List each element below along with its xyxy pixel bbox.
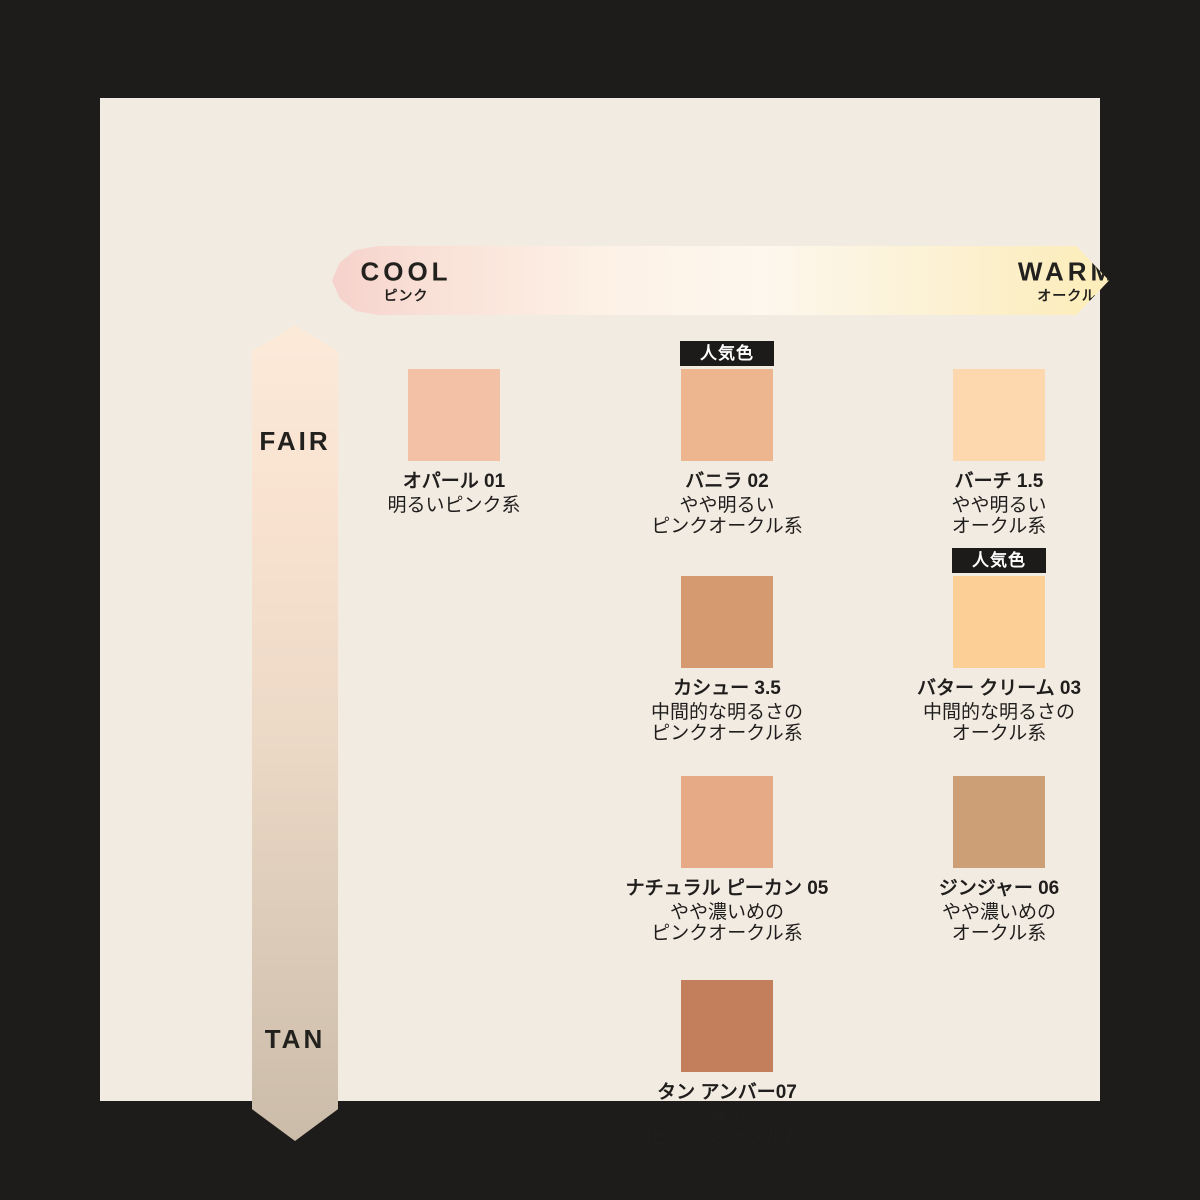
shade-swatch [953,576,1045,668]
chart-panel: COOL ピンク WARM オークル FAIR TAN オパール 01 明るいピ… [100,98,1100,1101]
shade-name: ナチュラル ピーカン 05 [607,878,847,900]
warm-label: WARM [1018,258,1116,285]
cool-sublabel: ピンク [360,288,451,303]
shade-cell: ジンジャー 06 やや濃いめの オークル系 [879,776,1119,944]
shade-swatch [953,369,1045,461]
shade-swatch [681,980,773,1072]
shade-swatch [681,776,773,868]
shade-description: やや明るい オークル系 [879,495,1119,537]
popular-badge: 人気色 [952,548,1046,573]
shade-cell: カシュー 3.5 中間的な明るさの ピンクオークル系 [607,576,847,744]
shade-description: やや濃いめの オークル系 [879,902,1119,944]
warm-axis-end: WARM オークル [1018,258,1116,303]
shade-name: ジンジャー 06 [879,878,1119,900]
shade-chart: COOL ピンク WARM オークル FAIR TAN オパール 01 明るいピ… [0,0,1200,1200]
shade-name: バニラ 02 [607,471,847,493]
shade-description: やや明るい ピンクオークル系 [607,495,847,537]
shade-cell: タン アンバー07 濃い ピンクオークル系 [607,980,847,1148]
cool-label: COOL [360,258,451,285]
shade-description: 濃い ピンクオークル系 [607,1106,847,1148]
shade-swatch [681,369,773,461]
shade-name: カシュー 3.5 [607,678,847,700]
shade-cell: バーチ 1.5 やや明るい オークル系 [879,369,1119,537]
shade-name: タン アンバー07 [607,1082,847,1104]
shade-cell: 人気色 バニラ 02 やや明るい ピンクオークル系 [607,369,847,537]
shade-description: 中間的な明るさの オークル系 [879,702,1119,744]
shade-name: バーチ 1.5 [879,471,1119,493]
popular-badge: 人気色 [680,341,774,366]
depth-axis-arrow: FAIR TAN [252,325,338,1141]
shade-description: やや濃いめの ピンクオークル系 [607,902,847,944]
shade-description: 中間的な明るさの ピンクオークル系 [607,702,847,744]
shade-description: 明るいピンク系 [334,495,574,516]
shade-swatch [408,369,500,461]
warm-sublabel: オークル [1018,288,1116,303]
shade-cell: ナチュラル ピーカン 05 やや濃いめの ピンクオークル系 [607,776,847,944]
fair-label: FAIR [252,426,338,457]
shade-swatch [953,776,1045,868]
shade-cell: 人気色 バター クリーム 03 中間的な明るさの オークル系 [879,576,1119,744]
shade-name: バター クリーム 03 [879,678,1119,700]
shade-cell: オパール 01 明るいピンク系 [334,369,574,516]
shade-swatch [681,576,773,668]
tan-label: TAN [252,1024,338,1055]
shade-name: オパール 01 [334,471,574,493]
cool-axis-end: COOL ピンク [360,258,451,303]
undertone-axis-arrow: COOL ピンク WARM オークル [332,246,1109,315]
